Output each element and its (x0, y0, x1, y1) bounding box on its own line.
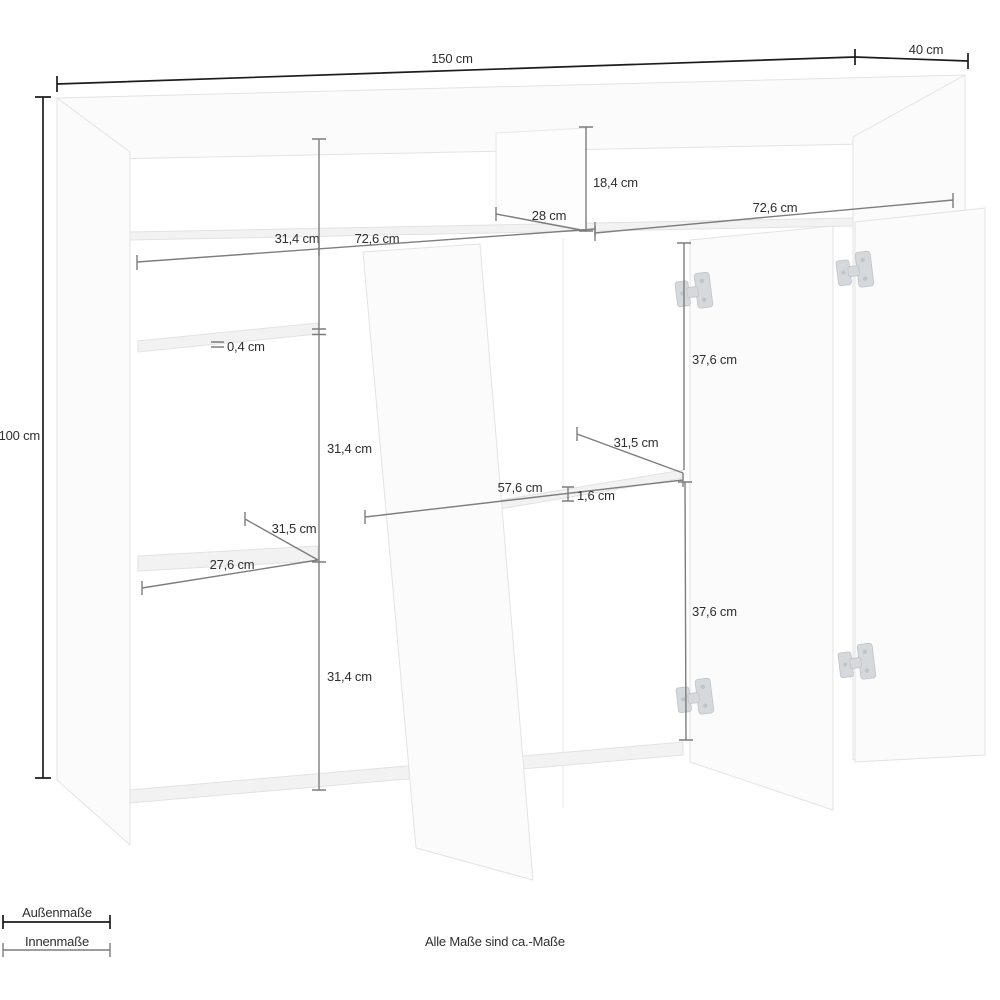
door-right-open (855, 208, 985, 762)
dim-line-right-upper-door-height (677, 243, 691, 470)
dim-label-middle-section-width: 72,6 cm (355, 231, 400, 246)
dim-label-total-width: 150 cm (431, 51, 472, 66)
sideboard-drawing (57, 75, 985, 880)
cabinet-bottom-board (130, 742, 683, 803)
dim-label-left-shelf-width: 27,6 cm (210, 557, 255, 572)
dim-label-shelf-thickness: 1,6 cm (577, 488, 615, 503)
dim-line-middle-shelf-depth (577, 427, 683, 473)
dim-label-right-lower-door-height: 37,6 cm (692, 604, 737, 619)
dim-label-glass-shelf-thickness: 0,4 cm (227, 339, 265, 354)
legend: Außenmaße Innenmaße (3, 905, 110, 957)
dim-label-left-upper-height: 31,4 cm (327, 441, 372, 456)
dim-label-top-divider-width: 28 cm (532, 208, 566, 223)
dim-label-total-depth: 40 cm (909, 42, 943, 57)
legend-outer-label: Außenmaße (22, 905, 92, 920)
dim-label-left-lower-height: 31,4 cm (327, 669, 372, 684)
door-left-open (363, 244, 533, 880)
dim-label-right-upper-door-height: 37,6 cm (692, 352, 737, 367)
legend-inner-label: Innenmaße (25, 934, 89, 949)
dim-label-middle-shelf-width: 57,6 cm (498, 480, 543, 495)
dim-label-top-niche-height: 18,4 cm (593, 175, 638, 190)
dimension-diagram: 150 cm 40 cm 100 cm 18,4 cm 28 cm 72,6 c… (0, 0, 1000, 1000)
dim-label-left-shelf-depth: 31,5 cm (272, 521, 317, 536)
cabinet-left-side-panel (57, 98, 130, 845)
dim-label-left-bay-width: 31,4 cm (275, 231, 320, 246)
dim-label-top-niche-right-width: 72,6 cm (753, 200, 798, 215)
door-middle-open (690, 226, 833, 810)
product-dimension-image: 150 cm 40 cm 100 cm 18,4 cm 28 cm 72,6 c… (0, 0, 1000, 1000)
dim-label-total-height: 100 cm (0, 428, 40, 443)
approx-note: Alle Maße sind ca.-Maße (425, 934, 565, 949)
dim-label-middle-shelf-depth: 31,5 cm (614, 435, 659, 450)
